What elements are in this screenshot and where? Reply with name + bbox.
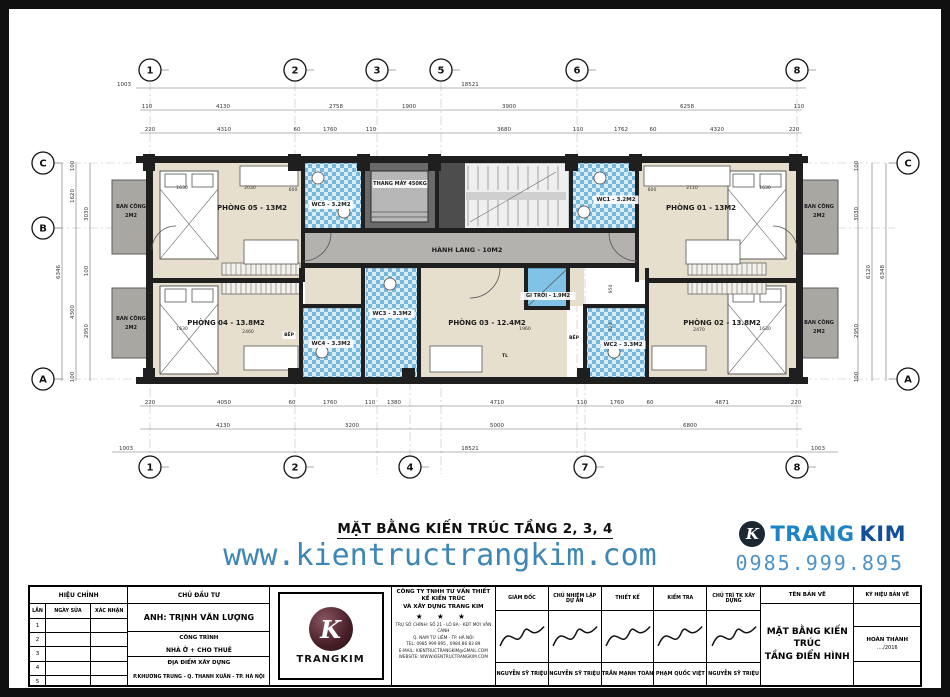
svg-text:C: C xyxy=(904,159,911,170)
dimension-text: 6258 xyxy=(680,104,694,110)
grid-bubble-1: 1 xyxy=(139,59,169,81)
company-name-line1: CÔNG TY TNHH TƯ VẤN THIẾT KẾ KIẾN TRÚC xyxy=(394,589,493,604)
room-label: BAN CÔNG xyxy=(804,319,834,326)
room-label: PHÒNG 02 - 13.8M2 xyxy=(683,318,761,327)
dimension-text: 220 xyxy=(145,400,156,406)
revision-row: 3 xyxy=(30,647,127,661)
company-name-line2: VÀ XÂY DỰNG TRANG KIM xyxy=(394,604,493,611)
brand-name-kim: KIM xyxy=(860,522,906,546)
grid-bubble-C: C xyxy=(889,152,919,174)
company-info: CÔNG TY TNHH TƯ VẤN THIẾT KẾ KIẾN TRÚC V… xyxy=(392,587,496,685)
revision-rows: 12345 xyxy=(30,619,127,685)
wall xyxy=(136,156,808,163)
stars-icon: ★ ★ ★ xyxy=(394,612,493,621)
grid-bubble-1: 1 xyxy=(139,456,169,478)
plan-room xyxy=(568,268,584,306)
dimension-text: 1762 xyxy=(614,127,628,133)
grid-bubble-A: A xyxy=(32,368,62,390)
dimension-text: 1960 xyxy=(519,326,531,332)
wall xyxy=(583,306,587,377)
furniture xyxy=(430,346,482,372)
dimension-text: 60 xyxy=(650,127,657,133)
dimension-text: 1630 xyxy=(176,326,188,332)
dimension-text: 110 xyxy=(365,400,376,406)
wall xyxy=(136,377,808,384)
signature-icon xyxy=(654,611,706,663)
wall xyxy=(796,163,803,377)
svg-text:C: C xyxy=(39,159,46,170)
room-label: 2M2 xyxy=(125,325,137,331)
dimension-text: 6346 xyxy=(56,265,62,279)
room-label: WC5 - 3.2M2 xyxy=(311,202,350,208)
floor-plan-drawing: PHÒNG 05 - 13M2WC5 - 3.2M2THANG MÁY 450K… xyxy=(0,0,950,520)
dimension-text: 600 xyxy=(289,187,298,193)
signature-role: CHỦ TRÌ TK XÂY DỰNG xyxy=(707,587,760,611)
room-label: 2M2 xyxy=(813,329,825,335)
owner-name: ANH: TRỊNH VĂN LƯỢNG xyxy=(128,604,269,632)
dimension-text: 1760 xyxy=(323,127,337,133)
svg-text:7: 7 xyxy=(582,463,589,474)
signature-icon xyxy=(549,611,601,663)
room-label: BẾP xyxy=(569,333,580,341)
dimension-text: 1630 xyxy=(176,185,188,191)
plan-wc xyxy=(305,163,362,229)
plan-room xyxy=(526,308,567,378)
furniture xyxy=(644,166,730,186)
dimension-text: 1760 xyxy=(323,400,337,406)
room-label: WC2 - 3.3M2 xyxy=(603,342,642,348)
dimension-text: 2460 xyxy=(242,329,254,335)
room-label: TL xyxy=(502,353,508,359)
dimension-text: 4710 xyxy=(490,400,504,406)
dimension-text: 6800 xyxy=(683,423,697,429)
dimension-text: 5000 xyxy=(490,423,504,429)
dimension-text: 4130 xyxy=(216,104,230,110)
room-label: 2M2 xyxy=(125,213,137,219)
site-value: P.KHƯƠNG TRUNG - Q. THANH XUÂN - TP. HÀ … xyxy=(128,669,269,685)
drawing-name-cell: TÊN BẢN VẼ MẶT BẰNG KIẾN TRÚCTẦNG ĐIỂN H… xyxy=(761,587,854,685)
dimension-text: 3030 xyxy=(84,207,90,221)
furniture xyxy=(686,240,740,264)
svg-text:2: 2 xyxy=(292,463,299,474)
wall xyxy=(303,228,637,233)
plan-bal xyxy=(112,288,150,358)
wall xyxy=(565,154,578,171)
signature-column: GIÁM ĐỐCNGUYỄN SỸ TRIỆU xyxy=(496,587,549,685)
drawing-name: MẶT BẰNG KIẾN TRÚCTẦNG ĐIỂN HÌNH xyxy=(761,604,853,685)
signature-name: NGUYỄN SỸ TRIỆU xyxy=(549,663,601,685)
dimension-text: 2758 xyxy=(329,104,343,110)
company-detail-line: TEL: 0985 999 895 , 0984 86 83 89 xyxy=(394,641,493,648)
revision-col-lan: LẦN xyxy=(30,604,46,618)
dimension-text: 100 xyxy=(70,160,76,171)
wall xyxy=(417,268,421,377)
svg-text:2: 2 xyxy=(292,66,299,77)
wall xyxy=(288,154,301,171)
grid-bubble-8: 8 xyxy=(786,456,816,478)
grid-bubble-2: 2 xyxy=(284,456,314,478)
room-label: GI TRỜI - 1.9M2 xyxy=(526,292,571,299)
dimension-text: 1003 xyxy=(811,446,825,452)
svg-text:4: 4 xyxy=(407,463,414,474)
grid-bubble-3: 3 xyxy=(366,59,396,81)
dimension-text: 220 xyxy=(789,127,800,133)
dimension-text: 220 xyxy=(145,127,156,133)
furniture xyxy=(652,346,706,370)
signature-icon xyxy=(602,611,654,663)
dimension-text: 60 xyxy=(289,400,296,406)
wall xyxy=(524,268,528,310)
svg-text:3: 3 xyxy=(374,66,381,77)
dimension-text: 2950 xyxy=(84,324,90,338)
wall xyxy=(645,268,649,377)
furniture xyxy=(244,240,298,264)
dimension-text: 600 xyxy=(648,187,657,193)
dimension-text: 3900 xyxy=(502,104,516,110)
dimension-text: 4871 xyxy=(715,400,729,406)
wall xyxy=(789,154,802,171)
signature-icon xyxy=(496,611,548,663)
wall xyxy=(629,154,642,171)
trangkim-logo-icon: K xyxy=(739,521,765,547)
dimension-text: 3680 xyxy=(497,127,511,133)
wc-fixture xyxy=(594,172,606,184)
revision-title: HIỆU CHỈNH xyxy=(30,587,127,604)
dimension-text: 2110 xyxy=(686,185,698,191)
brand-name-trang: TRANG xyxy=(770,522,854,546)
revision-col-ngaysua: NGÀY SỬA xyxy=(46,604,91,618)
svg-text:1: 1 xyxy=(147,66,154,77)
signature-name: PHẠM QUỐC VIỆT xyxy=(654,663,706,685)
dimension-text: 18521 xyxy=(461,446,479,452)
dimension-text: 320 xyxy=(608,323,614,332)
code-status-cell: HOÀN THÀNH ..../2016 xyxy=(854,627,920,662)
room-label: PHÒNG 03 - 12.4M2 xyxy=(448,318,526,327)
company-detail-line: TRỤ SỞ CHÍNH: SỐ 21 - LÔ 8A - KĐT MỚI VÂ… xyxy=(394,622,493,635)
dimension-text: 60 xyxy=(647,400,654,406)
plan-room xyxy=(305,268,362,306)
grid-bubble-A: A xyxy=(889,368,919,390)
revision-table: HIỆU CHỈNH LẦN NGÀY SỬA XÁC NHẬN 12345 xyxy=(30,587,128,685)
dimension-text: 4130 xyxy=(216,423,230,429)
wall xyxy=(789,368,802,384)
wall xyxy=(143,154,155,171)
revision-row: 5 xyxy=(30,676,127,685)
revision-col-xacnhan: XÁC NHẬN xyxy=(91,604,127,618)
room-label: BAN CÔNG xyxy=(116,203,146,210)
plan-liftc xyxy=(371,171,428,222)
dimension-text: 100 xyxy=(854,160,860,171)
wall xyxy=(577,368,590,384)
room-label: PHÒNG 05 - 13M2 xyxy=(217,203,287,212)
wc-fixture xyxy=(384,278,396,290)
signature-column: CHỦ NHIỆM LẬP DỰ ÁNNGUYỄN SỸ TRIỆU xyxy=(549,587,602,685)
grid-bubble-5: 5 xyxy=(430,59,460,81)
room-label: PHÒNG 01 - 13M2 xyxy=(666,203,736,212)
signature-role: CHỦ NHIỆM LẬP DỰ ÁN xyxy=(549,587,601,611)
revision-row: 1 xyxy=(30,619,127,633)
revision-row: 4 xyxy=(30,662,127,676)
room-label: WC1 - 3.2M2 xyxy=(596,197,635,203)
svg-text:6: 6 xyxy=(574,66,581,77)
grid-bubble-7: 7 xyxy=(574,456,604,478)
svg-text:8: 8 xyxy=(794,463,801,474)
wc-fixture xyxy=(312,172,324,184)
dimension-text: 1900 xyxy=(402,104,416,110)
furniture xyxy=(244,346,298,370)
signature-role: THIẾT KẾ xyxy=(602,587,654,611)
dimension-text: 100 xyxy=(84,265,90,276)
grid-bubble-4: 4 xyxy=(399,456,429,478)
room-label: THANG MÁY 450KG xyxy=(373,180,427,187)
signature-role: KIỂM TRA xyxy=(654,587,706,611)
dimension-text: 1003 xyxy=(119,446,133,452)
dimension-text: 6120 xyxy=(866,265,872,279)
plan-staird xyxy=(439,163,465,229)
wall xyxy=(357,154,370,171)
dimension-text: 1380 xyxy=(387,400,401,406)
dimension-text: 1760 xyxy=(610,400,624,406)
site-label: ĐỊA ĐIỂM XÂY DỰNG xyxy=(128,657,269,669)
wc-fixture xyxy=(578,206,590,218)
wall xyxy=(566,268,570,310)
project-value: NHÀ Ở + CHO THUÊ xyxy=(128,644,269,657)
wall xyxy=(402,368,415,384)
dimension-text: 100 xyxy=(854,371,860,382)
website-url[interactable]: www.kientructrangkim.com xyxy=(40,538,840,573)
wall xyxy=(152,278,303,283)
dimension-text: 6348 xyxy=(880,265,886,279)
wall xyxy=(299,268,303,377)
signature-columns: GIÁM ĐỐCNGUYỄN SỸ TRIỆUCHỦ NHIỆM LẬP DỰ … xyxy=(496,587,761,685)
wall xyxy=(288,368,301,384)
revision-row: 2 xyxy=(30,633,127,647)
dimension-text: 1003 xyxy=(117,82,131,88)
dimension-text: 2470 xyxy=(693,327,705,333)
company-detail-line: WEBSITE: WWW.KIENTRUCTRANGKIM.COM xyxy=(394,654,493,661)
dimension-text: 1630 xyxy=(759,326,771,332)
company-logo-icon: K xyxy=(309,607,353,651)
grid-bubble-8: 8 xyxy=(786,59,816,81)
dimension-text: 1630 xyxy=(759,185,771,191)
owner-header: CHỦ ĐẦU TƯ xyxy=(128,587,269,604)
code-empty-cell2 xyxy=(854,662,920,685)
signature-column: CHỦ TRÌ TK XÂY DỰNGNGUYỄN SỸ TRIỆU xyxy=(707,587,760,685)
room-label: PHÒNG 04 - 13.8M2 xyxy=(187,318,265,327)
signature-name: NGUYỄN SỸ TRIỆU xyxy=(496,663,548,685)
signature-column: KIỂM TRAPHẠM QUỐC VIỆT xyxy=(654,587,707,685)
dimension-text: 950 xyxy=(608,285,614,294)
signature-role: GIÁM ĐỐC xyxy=(496,587,548,611)
revision-columns: LẦN NGÀY SỬA XÁC NHẬN xyxy=(30,604,127,619)
dimension-text: 3200 xyxy=(345,423,359,429)
dimension-text: 2030 xyxy=(244,185,256,191)
wall xyxy=(303,304,365,308)
dimension-text: 60 xyxy=(294,127,301,133)
dimension-text: 110 xyxy=(794,104,805,110)
wall xyxy=(645,278,797,283)
owner-block: CHỦ ĐẦU TƯ ANH: TRỊNH VĂN LƯỢNG CÔNG TRÌ… xyxy=(128,587,270,685)
grid-bubble-6: 6 xyxy=(566,59,596,81)
wall xyxy=(303,263,637,268)
grid-bubble-C: C xyxy=(32,152,62,174)
wall xyxy=(146,163,153,377)
grid-bubble-B: B xyxy=(32,217,62,239)
dimension-text: 3030 xyxy=(854,207,860,221)
svg-text:A: A xyxy=(904,375,912,386)
room-label: 2M2 xyxy=(813,213,825,219)
dimension-text: 110 xyxy=(573,127,584,133)
signature-name: NGUYỄN SỸ TRIỆU xyxy=(707,663,760,685)
room-label: WC3 - 3.3M2 xyxy=(372,311,411,317)
grid-bubble-2: 2 xyxy=(284,59,314,81)
wall xyxy=(361,268,365,377)
room-label: BAN CÔNG xyxy=(116,315,146,322)
svg-text:8: 8 xyxy=(794,66,801,77)
svg-text:1: 1 xyxy=(147,463,154,474)
signature-column: THIẾT KẾTRẦN MẠNH TOÀN xyxy=(602,587,655,685)
signature-icon xyxy=(707,611,760,663)
dimension-text: 1620 xyxy=(70,189,76,203)
company-logo-text: TRANGKIM xyxy=(296,654,364,665)
wall xyxy=(524,306,570,310)
dimension-text: 220 xyxy=(791,400,802,406)
dimension-text: 4320 xyxy=(710,127,724,133)
drawing-code-header: KÝ HIỆU BẢN VẼ xyxy=(854,587,920,604)
room-label: WC4 - 3.3M2 xyxy=(311,341,350,347)
dimension-text: 110 xyxy=(577,400,588,406)
wall xyxy=(583,304,649,308)
dimension-text: 110 xyxy=(142,104,153,110)
room-label: HÀNH LANG - 10M2 xyxy=(432,245,503,254)
dimension-text: 2950 xyxy=(854,324,860,338)
project-label: CÔNG TRÌNH xyxy=(128,632,269,644)
room-label: BAN CÔNG xyxy=(804,203,834,210)
code-empty-cell xyxy=(854,604,920,627)
svg-text:A: A xyxy=(39,375,47,386)
title-block: HIỆU CHỈNH LẦN NGÀY SỬA XÁC NHẬN 12345 C… xyxy=(28,585,922,687)
drawing-sheet: PHÒNG 05 - 13M2WC5 - 3.2M2THANG MÁY 450K… xyxy=(0,0,950,697)
svg-text:5: 5 xyxy=(438,66,445,77)
company-logo-cell: K TRANGKIM xyxy=(270,587,391,685)
company-details: TRỤ SỞ CHÍNH: SỐ 21 - LÔ 8A - KĐT MỚI VÂ… xyxy=(394,622,493,661)
dimension-text: 4050 xyxy=(217,400,231,406)
plan-stairland xyxy=(466,192,566,200)
drawing-code-cell: KÝ HIỆU BẢN VẼ HOÀN THÀNH ..../2016 xyxy=(854,587,920,685)
trangkim-logo: K TRANGKIM xyxy=(739,521,906,547)
phone-number: 0985.999.895 xyxy=(736,551,905,575)
svg-text:B: B xyxy=(39,224,47,235)
dimension-text: 100 xyxy=(70,371,76,382)
dimension-text: 4310 xyxy=(217,127,231,133)
dimension-text: 18521 xyxy=(461,82,479,88)
drawing-name-header: TÊN BẢN VẼ xyxy=(761,587,853,604)
dimension-text: 4300 xyxy=(70,305,76,319)
wall xyxy=(143,368,155,384)
signature-name: TRẦN MẠNH TOÀN xyxy=(602,663,654,685)
dimension-text: 110 xyxy=(366,127,377,133)
company-logo-frame: K TRANGKIM xyxy=(278,592,384,680)
wall xyxy=(428,154,441,171)
